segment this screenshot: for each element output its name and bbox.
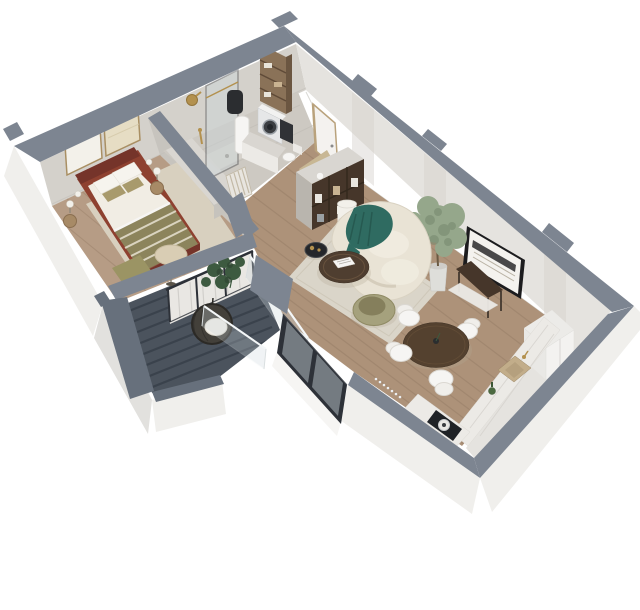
door-handle: [331, 145, 334, 148]
floor-plan-svg: [0, 0, 640, 610]
coffee-table: [317, 251, 371, 288]
black-wall-panel: [227, 90, 243, 114]
west-pier: [3, 122, 24, 141]
sofa-cushion-2: [381, 259, 419, 285]
wall-lamp-left: [75, 191, 81, 197]
shelf-vase: [317, 173, 324, 180]
olive-armchair: [351, 295, 397, 329]
shower-glass-partition: [206, 70, 238, 180]
round-dining-table: [403, 323, 469, 368]
apex-pier: [271, 11, 298, 28]
wall-lamp-right: [146, 159, 152, 165]
floor-plan-render: [0, 0, 640, 610]
